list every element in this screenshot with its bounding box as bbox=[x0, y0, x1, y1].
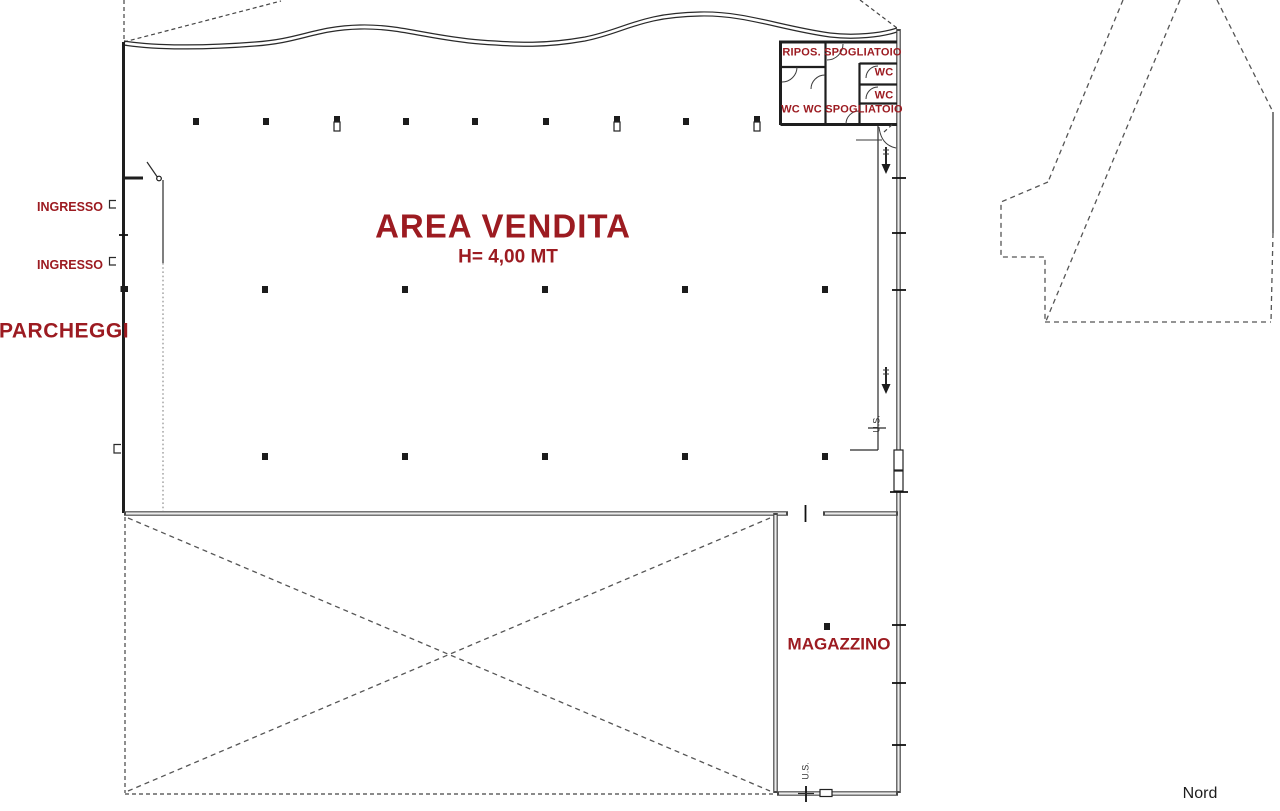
ingresso-label-2: INGRESSO bbox=[37, 259, 103, 272]
door-symbol bbox=[110, 258, 117, 266]
wc-wc-spogliatoio-label: WC WC SPOGLIATOIO bbox=[781, 105, 903, 116]
site-boundary-outline bbox=[1001, 0, 1273, 322]
stairs-direction-arrow bbox=[882, 147, 891, 174]
parcheggi-label: PARCHEGGI bbox=[0, 321, 129, 342]
future-area-outline bbox=[125, 517, 773, 794]
construction-lines bbox=[124, 0, 897, 42]
door-symbol bbox=[110, 201, 117, 209]
uscita-sicurezza-label-bottom: U.S. bbox=[802, 762, 811, 780]
door-symbol bbox=[114, 445, 121, 454]
floor-plan-drawing bbox=[0, 0, 1280, 811]
door-leaf bbox=[820, 790, 832, 797]
magazzino-label: MAGAZZINO bbox=[788, 636, 891, 653]
ceiling-height-label: H= 4,00 MT bbox=[458, 248, 558, 267]
door-leaf bbox=[894, 471, 903, 491]
uscita-sicurezza-label-right: U.S. bbox=[873, 415, 882, 433]
area-vendita-label: AREA VENDITA bbox=[375, 210, 631, 243]
column-grid bbox=[193, 116, 830, 630]
wc-label-2: WC bbox=[875, 91, 894, 102]
stairs-direction-arrow bbox=[882, 367, 891, 394]
ingresso-label-1: INGRESSO bbox=[37, 201, 103, 214]
door-leaf bbox=[894, 450, 903, 470]
north-label: Nord bbox=[1183, 786, 1218, 802]
outer-walls bbox=[124, 29, 899, 794]
floor-plan-canvas: AREA VENDITA H= 4,00 MT INGRESSO INGRESS… bbox=[0, 0, 1280, 811]
ripos-spogliatoio-label: RIPOS. SPOGLIATOIO bbox=[782, 48, 901, 59]
wc-label-1: WC bbox=[875, 68, 894, 79]
wall-ticks bbox=[798, 178, 908, 802]
